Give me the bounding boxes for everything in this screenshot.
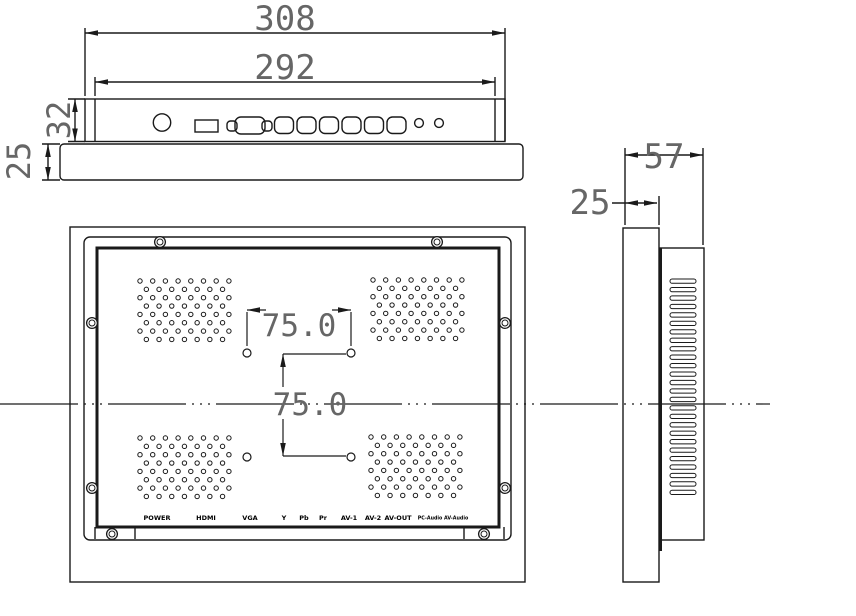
vent-hole — [176, 329, 180, 333]
vent-hole — [201, 279, 205, 283]
vent-hole — [394, 468, 398, 472]
vent-hole — [176, 279, 180, 283]
vent-hole — [189, 312, 193, 316]
vent-hole — [390, 320, 394, 324]
audio-jack-2 — [435, 119, 444, 128]
vent-slot — [670, 330, 696, 334]
vent-hole — [407, 485, 411, 489]
vent-slot — [670, 372, 696, 376]
vent-hole — [407, 435, 411, 439]
vent-hole — [460, 295, 464, 299]
vent-hole — [420, 452, 424, 456]
vent-hole — [441, 286, 445, 290]
vent-hole — [375, 493, 379, 497]
vent-hole — [388, 477, 392, 481]
vent-hole — [195, 444, 199, 448]
vent-hole — [453, 320, 457, 324]
vent-hole — [170, 304, 174, 308]
vent-hole — [384, 278, 388, 282]
vent-hole — [415, 286, 419, 290]
vent-hole — [426, 477, 430, 481]
vesa-hole-bottom-right — [347, 453, 355, 461]
vent-hole — [201, 329, 205, 333]
vent-hole — [409, 295, 413, 299]
vent-hole — [144, 304, 148, 308]
vent-slot — [670, 313, 696, 317]
vent-hole — [384, 295, 388, 299]
vent-hole — [182, 444, 186, 448]
vent-hole — [453, 336, 457, 340]
vent-slot — [670, 490, 696, 494]
vent-grid-top-right — [371, 278, 464, 341]
vent-hole — [413, 443, 417, 447]
vent-hole — [394, 435, 398, 439]
vent-hole — [182, 461, 186, 465]
vent-hole — [151, 279, 155, 283]
vent-hole — [144, 321, 148, 325]
vent-hole — [138, 296, 142, 300]
top-view-front-bezel — [60, 144, 523, 180]
vent-slot — [670, 473, 696, 477]
vent-slot — [670, 406, 696, 410]
vent-hole — [220, 304, 224, 308]
vent-hole — [170, 337, 174, 341]
vent-hole — [371, 295, 375, 299]
vent-hole — [460, 328, 464, 332]
vent-hole — [377, 286, 381, 290]
vent-hole — [138, 279, 142, 283]
dim-25-side-label: 25 — [570, 183, 611, 223]
vent-hole — [377, 320, 381, 324]
vent-hole — [396, 328, 400, 332]
vent-hole — [170, 494, 174, 498]
vent-slot — [670, 482, 696, 486]
vent-hole — [382, 468, 386, 472]
vent-slot — [670, 431, 696, 435]
vent-hole — [163, 469, 167, 473]
vent-hole — [403, 303, 407, 307]
vent-hole — [214, 469, 218, 473]
vesa-hole-bottom-left — [243, 453, 251, 461]
vent-hole — [407, 468, 411, 472]
vent-hole — [220, 444, 224, 448]
vent-hole — [138, 453, 142, 457]
vent-slot — [670, 380, 696, 384]
vent-hole — [163, 329, 167, 333]
vent-slot — [670, 364, 696, 368]
vent-hole — [422, 311, 426, 315]
port-label-av1: AV-1 — [341, 514, 358, 522]
port-label-avout: AV-OUT — [384, 514, 412, 522]
vent-slot — [670, 456, 696, 460]
vent-hole — [157, 461, 161, 465]
vent-hole — [413, 460, 417, 464]
vent-hole — [413, 477, 417, 481]
vent-hole — [377, 303, 381, 307]
vent-hole — [195, 321, 199, 325]
vent-hole — [157, 287, 161, 291]
vent-hole — [208, 321, 212, 325]
vent-hole — [384, 311, 388, 315]
vent-hole — [447, 278, 451, 282]
vent-hole — [422, 295, 426, 299]
vent-hole — [208, 494, 212, 498]
vent-hole — [388, 443, 392, 447]
vent-hole — [176, 453, 180, 457]
side-vent-slots — [670, 279, 696, 495]
vent-hole — [441, 336, 445, 340]
vent-hole — [182, 321, 186, 325]
vent-hole — [227, 279, 231, 283]
vent-hole — [409, 328, 413, 332]
vent-hole — [189, 453, 193, 457]
vent-hole — [195, 287, 199, 291]
vent-hole — [151, 469, 155, 473]
vent-hole — [439, 460, 443, 464]
vent-grid-top-left — [138, 279, 231, 342]
vent-hole — [214, 486, 218, 490]
vent-hole — [369, 452, 373, 456]
vent-hole — [371, 311, 375, 315]
vent-hole — [428, 303, 432, 307]
vent-hole — [208, 287, 212, 291]
vent-hole — [426, 443, 430, 447]
port-label-y: Y — [281, 514, 287, 522]
screw — [479, 529, 490, 540]
port-label-av2: AV-2 — [365, 514, 381, 522]
vent-hole — [201, 453, 205, 457]
vent-hole — [227, 486, 231, 490]
vent-hole — [201, 312, 205, 316]
vent-grid-bottom-right — [369, 435, 462, 498]
vent-hole — [157, 321, 161, 325]
hdmi-port — [195, 120, 218, 132]
vent-hole — [420, 468, 424, 472]
vent-slot — [670, 440, 696, 444]
vent-hole — [201, 296, 205, 300]
vent-hole — [396, 295, 400, 299]
vent-hole — [382, 485, 386, 489]
top-view: 308 292 32 25 — [0, 0, 523, 180]
vent-hole — [176, 296, 180, 300]
screw — [155, 237, 166, 248]
vent-hole — [138, 469, 142, 473]
dim-25-top — [42, 144, 60, 180]
port-label-vga: VGA — [242, 514, 257, 522]
port-label-hdmi: HDMI — [196, 514, 216, 522]
vent-hole — [447, 295, 451, 299]
vent-hole — [420, 485, 424, 489]
vent-hole — [451, 493, 455, 497]
vent-hole — [227, 453, 231, 457]
vent-hole — [201, 486, 205, 490]
port-label-pb: Pb — [299, 514, 309, 522]
vent-slot — [670, 355, 696, 359]
vent-hole — [369, 435, 373, 439]
vent-slot — [670, 389, 696, 393]
vent-hole — [151, 486, 155, 490]
vent-hole — [422, 328, 426, 332]
vent-hole — [195, 494, 199, 498]
vent-hole — [176, 486, 180, 490]
vent-hole — [151, 453, 155, 457]
screw — [500, 483, 511, 494]
vent-hole — [163, 296, 167, 300]
vent-hole — [434, 311, 438, 315]
dim-308-label: 308 — [254, 0, 315, 39]
vent-hole — [201, 469, 205, 473]
dim-25-side — [612, 196, 659, 225]
vent-hole — [176, 436, 180, 440]
vga-connector — [227, 117, 272, 134]
vent-hole — [163, 486, 167, 490]
vent-hole — [458, 468, 462, 472]
vent-hole — [409, 278, 413, 282]
vent-hole — [220, 321, 224, 325]
vent-hole — [227, 436, 231, 440]
vent-hole — [214, 279, 218, 283]
vent-slot — [670, 448, 696, 452]
vent-hole — [170, 321, 174, 325]
vesa-hole-top-left — [243, 349, 251, 357]
side-view: 57 25 — [570, 137, 704, 582]
vent-hole — [208, 461, 212, 465]
vent-hole — [453, 286, 457, 290]
vent-slot — [670, 347, 696, 351]
vent-hole — [377, 336, 381, 340]
vent-hole — [451, 477, 455, 481]
vent-hole — [151, 436, 155, 440]
vent-hole — [157, 444, 161, 448]
vent-hole — [182, 287, 186, 291]
vent-hole — [151, 329, 155, 333]
vent-hole — [439, 477, 443, 481]
vent-slot — [670, 465, 696, 469]
vent-hole — [384, 328, 388, 332]
vent-hole — [214, 436, 218, 440]
vent-hole — [163, 279, 167, 283]
vent-hole — [407, 452, 411, 456]
vent-hole — [369, 468, 373, 472]
vent-hole — [458, 485, 462, 489]
vent-slot — [670, 287, 696, 291]
vent-hole — [227, 329, 231, 333]
dim-25-top-label: 25 — [0, 142, 38, 181]
screw — [87, 483, 98, 494]
vent-hole — [401, 443, 405, 447]
vent-hole — [445, 452, 449, 456]
vent-hole — [195, 461, 199, 465]
port-label-pr: Pr — [319, 514, 328, 522]
vent-hole — [189, 469, 193, 473]
vent-hole — [434, 328, 438, 332]
vent-hole — [144, 337, 148, 341]
vent-hole — [208, 304, 212, 308]
vent-hole — [214, 453, 218, 457]
vent-hole — [138, 329, 142, 333]
vent-hole — [371, 328, 375, 332]
vent-hole — [382, 435, 386, 439]
vent-hole — [460, 278, 464, 282]
vent-hole — [227, 312, 231, 316]
vent-hole — [201, 436, 205, 440]
vent-hole — [220, 461, 224, 465]
vent-hole — [189, 436, 193, 440]
vent-hole — [375, 443, 379, 447]
vent-hole — [369, 485, 373, 489]
vent-hole — [163, 312, 167, 316]
vent-hole — [144, 444, 148, 448]
vent-hole — [220, 287, 224, 291]
vent-hole — [371, 278, 375, 282]
vent-hole — [432, 435, 436, 439]
dim-vesa-horizontal-label: 75.0 — [262, 308, 337, 344]
vent-hole — [208, 444, 212, 448]
vent-hole — [220, 337, 224, 341]
port-label-audio: PC-Audio AV-Audio — [418, 516, 469, 522]
port-label-power: POWER — [144, 514, 171, 522]
vent-hole — [409, 311, 413, 315]
vent-hole — [208, 478, 212, 482]
vent-hole — [458, 435, 462, 439]
vent-hole — [138, 436, 142, 440]
vent-slot — [670, 304, 696, 308]
vent-hole — [432, 485, 436, 489]
vent-hole — [157, 494, 161, 498]
screw — [432, 237, 443, 248]
vent-hole — [415, 303, 419, 307]
vent-hole — [415, 336, 419, 340]
vent-slot — [670, 338, 696, 342]
vent-hole — [170, 444, 174, 448]
vent-hole — [453, 303, 457, 307]
vent-slot — [670, 321, 696, 325]
vent-hole — [182, 337, 186, 341]
vent-hole — [458, 452, 462, 456]
vent-hole — [144, 287, 148, 291]
vent-hole — [195, 304, 199, 308]
vent-hole — [451, 460, 455, 464]
vesa-hole-top-right — [347, 349, 355, 357]
drawing-svg: 308 292 32 25 — [0, 0, 856, 616]
engineering-drawing: 308 292 32 25 — [0, 0, 856, 616]
vent-hole — [157, 304, 161, 308]
vent-hole — [157, 478, 161, 482]
vent-hole — [144, 461, 148, 465]
vent-hole — [428, 336, 432, 340]
vent-hole — [428, 320, 432, 324]
vent-hole — [375, 460, 379, 464]
vent-hole — [189, 296, 193, 300]
vent-hole — [375, 477, 379, 481]
power-jack — [153, 114, 170, 131]
vent-hole — [151, 312, 155, 316]
vent-hole — [144, 478, 148, 482]
vent-hole — [214, 296, 218, 300]
vent-hole — [163, 436, 167, 440]
vent-hole — [439, 493, 443, 497]
vent-hole — [227, 469, 231, 473]
vent-hole — [220, 478, 224, 482]
vent-slot — [670, 296, 696, 300]
vent-hole — [441, 303, 445, 307]
vent-hole — [182, 478, 186, 482]
vent-hole — [214, 329, 218, 333]
vent-hole — [445, 485, 449, 489]
vent-hole — [388, 493, 392, 497]
vent-hole — [138, 486, 142, 490]
vent-hole — [394, 485, 398, 489]
vent-slot — [670, 279, 696, 283]
vent-hole — [151, 296, 155, 300]
vent-hole — [394, 452, 398, 456]
screw — [87, 318, 98, 329]
vent-hole — [415, 320, 419, 324]
rca-jacks — [275, 117, 407, 134]
vent-hole — [182, 494, 186, 498]
vent-hole — [445, 468, 449, 472]
audio-jack-1 — [415, 119, 424, 128]
vent-hole — [401, 493, 405, 497]
vent-hole — [144, 494, 148, 498]
vent-hole — [157, 337, 161, 341]
vent-hole — [227, 296, 231, 300]
dim-57-label: 57 — [644, 137, 685, 177]
vent-hole — [434, 295, 438, 299]
vent-hole — [445, 435, 449, 439]
vent-hole — [189, 329, 193, 333]
vent-hole — [432, 452, 436, 456]
vent-hole — [176, 469, 180, 473]
screw — [107, 529, 118, 540]
dim-32-label: 32 — [40, 101, 78, 140]
vent-hole — [189, 279, 193, 283]
vent-hole — [396, 311, 400, 315]
vent-hole — [428, 286, 432, 290]
vent-hole — [439, 443, 443, 447]
vent-hole — [189, 486, 193, 490]
vent-hole — [401, 477, 405, 481]
vent-hole — [441, 320, 445, 324]
vent-hole — [403, 336, 407, 340]
vent-hole — [388, 460, 392, 464]
vent-hole — [447, 328, 451, 332]
vent-hole — [401, 460, 405, 464]
vent-hole — [432, 468, 436, 472]
vent-hole — [460, 311, 464, 315]
screw — [500, 318, 511, 329]
vent-hole — [434, 278, 438, 282]
vent-hole — [163, 453, 167, 457]
vent-slot — [670, 423, 696, 427]
port-label-strip: POWER HDMI VGA Y Pb Pr AV-1 AV-2 AV-OUT … — [144, 514, 469, 522]
vent-hole — [170, 287, 174, 291]
vent-hole — [396, 278, 400, 282]
vent-hole — [390, 303, 394, 307]
vent-hole — [422, 278, 426, 282]
vent-hole — [420, 435, 424, 439]
vent-hole — [138, 312, 142, 316]
vent-hole — [214, 312, 218, 316]
vent-hole — [390, 336, 394, 340]
vent-hole — [382, 452, 386, 456]
vent-grid-bottom-left — [138, 436, 231, 499]
vent-hole — [426, 493, 430, 497]
vent-hole — [390, 286, 394, 290]
vent-hole — [403, 320, 407, 324]
vent-hole — [208, 337, 212, 341]
vent-hole — [182, 304, 186, 308]
